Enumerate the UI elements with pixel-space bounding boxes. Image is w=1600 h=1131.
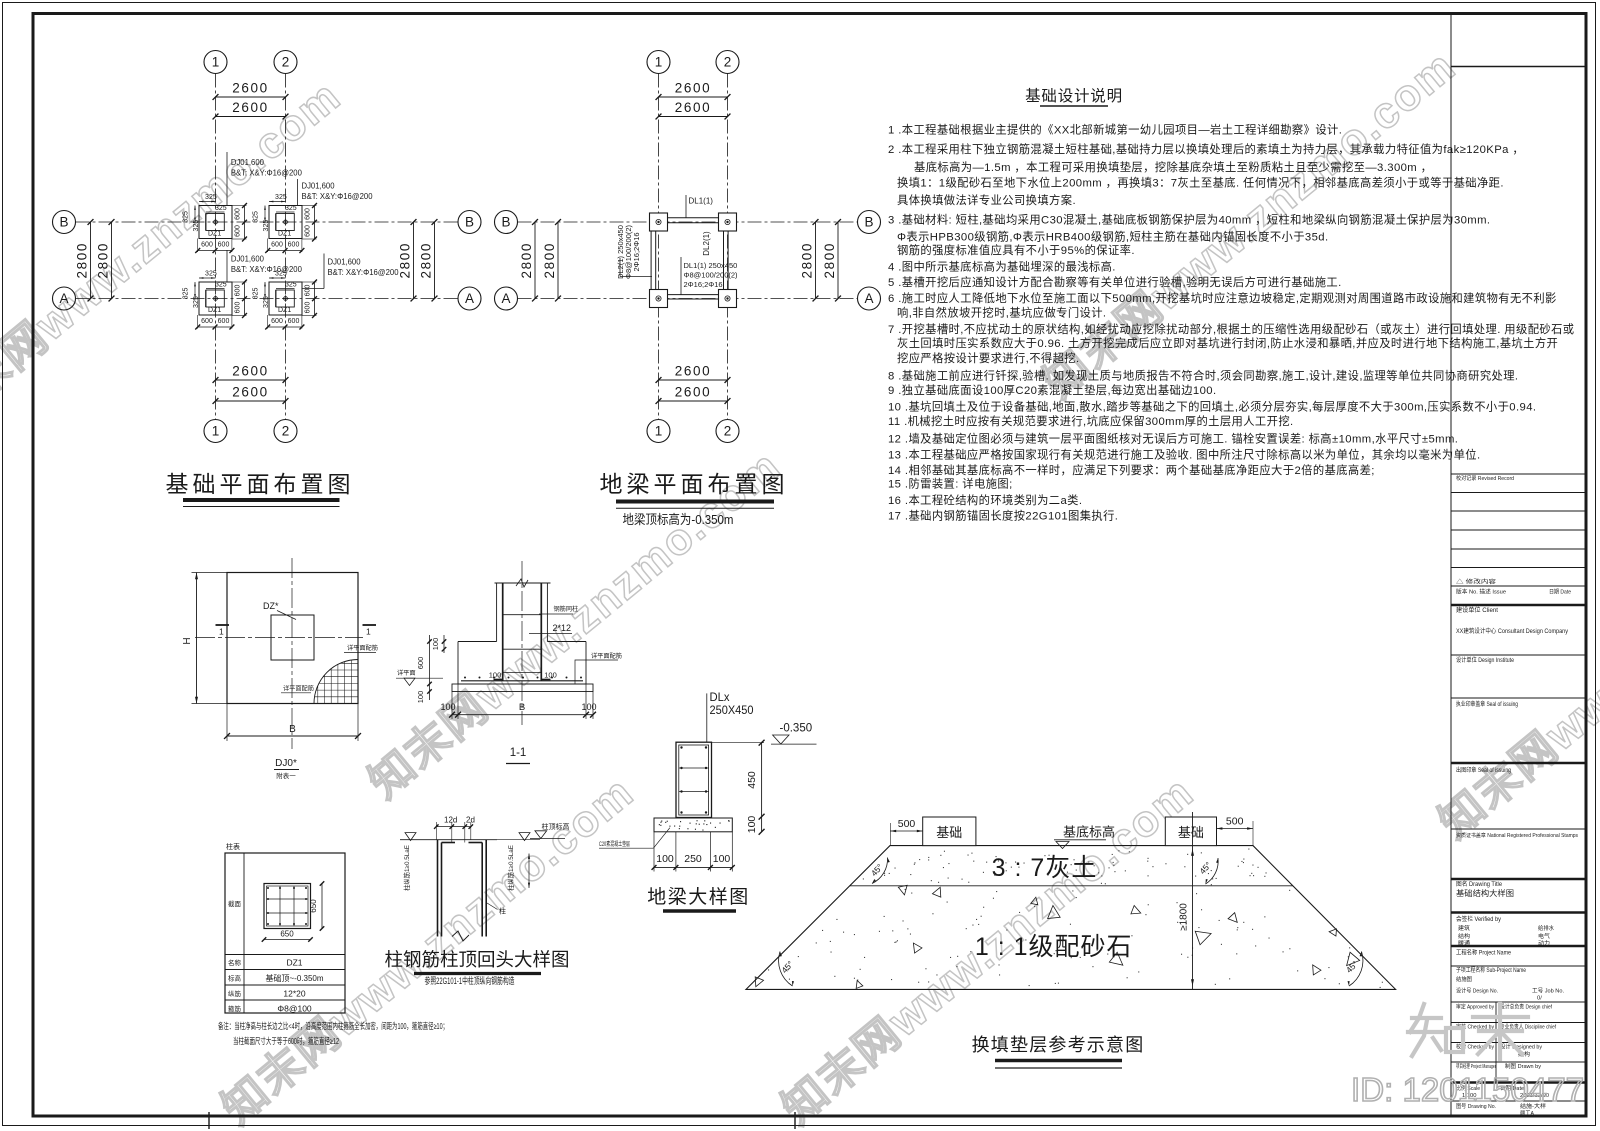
svg-text:基础结构大样图: 基础结构大样图 <box>1456 888 1514 898</box>
svg-text:详平面配筋: 详平面配筋 <box>283 685 314 693</box>
svg-text:2600: 2600 <box>675 81 711 96</box>
svg-text:B&T: X&Y:Φ16@200: B&T: X&Y:Φ16@200 <box>231 264 302 274</box>
svg-text:钢筋同柱: 钢筋同柱 <box>554 605 579 613</box>
svg-text:灰土回填时压实系数应大于0.96. 土方开挖完成后应立即对基: 灰土回填时压实系数应大于0.96. 土方开挖完成后应立即对基坑进行封闭,防止水浸… <box>897 336 1558 350</box>
svg-text:日期 Date: 日期 Date <box>1549 589 1571 596</box>
svg-text:325: 325 <box>215 205 227 212</box>
svg-text:基础: 基础 <box>936 825 962 840</box>
svg-text:DJ01,600: DJ01,600 <box>302 181 335 191</box>
svg-text:柱纵筋1≥0.5LaE: 柱纵筋1≥0.5LaE <box>506 845 515 891</box>
svg-text:3 : 7灰土: 3 : 7灰土 <box>992 854 1098 882</box>
svg-text:设计总负责 Design chief: 设计总负责 Design chief <box>1500 1003 1552 1011</box>
svg-text:10 .基坑回填土及位于设备基础,地面,散水,踏步等基础之下: 10 .基坑回填土及位于设备基础,地面,散水,踏步等基础之下的回填土,必须分层夯… <box>888 400 1536 414</box>
svg-text:DLx: DLx <box>710 690 730 704</box>
svg-text:600: 600 <box>201 242 213 249</box>
svg-text:600: 600 <box>305 208 312 220</box>
svg-text:600: 600 <box>416 657 425 670</box>
svg-text:Φ表示HPB300级钢筋,Φ表示HRB400级钢筋,短柱主筋: Φ表示HPB300级钢筋,Φ表示HRB400级钢筋,短柱主筋在基础内锚固长度不小… <box>897 229 1329 243</box>
svg-text:325: 325 <box>285 281 297 288</box>
svg-text:1 : 1级配砂石: 1 : 1级配砂石 <box>975 933 1133 961</box>
svg-text:箍筋: 箍筋 <box>228 1004 242 1013</box>
svg-text:基础: 基础 <box>1178 825 1204 840</box>
svg-text:动力: 动力 <box>1538 939 1550 947</box>
svg-text:DZ1: DZ1 <box>278 231 291 238</box>
svg-text:11 .机械挖土时应按有关规范要求进行,坑底应保留300mm: 11 .机械挖土时应按有关规范要求进行,坑底应保留300mm厚的土层用人工开挖. <box>888 414 1294 428</box>
svg-text:附表一: 附表一 <box>276 771 296 780</box>
svg-text:柱顶标高: 柱顶标高 <box>542 822 570 831</box>
svg-text:325: 325 <box>193 296 200 308</box>
svg-text:600: 600 <box>305 225 312 237</box>
svg-text:2800: 2800 <box>519 242 534 278</box>
svg-text:地梁平面布置图: 地梁平面布置图 <box>600 471 789 497</box>
svg-text:12*20: 12*20 <box>283 989 305 999</box>
svg-text:650: 650 <box>280 930 294 939</box>
svg-text:审定 Approved by: 审定 Approved by <box>1456 1003 1494 1011</box>
svg-text:2: 2 <box>724 424 732 439</box>
svg-text:≥1800: ≥1800 <box>1179 903 1190 931</box>
svg-text:1-1: 1-1 <box>510 747 527 759</box>
svg-text:A: A <box>59 291 68 306</box>
svg-text:1: 1 <box>366 627 371 637</box>
svg-text:100: 100 <box>656 853 674 865</box>
svg-text:2Φ16;2Φ16: 2Φ16;2Φ16 <box>684 280 723 289</box>
svg-text:钢筋的强度标准值应具有不小于95%的保证率.: 钢筋的强度标准值应具有不小于95%的保证率. <box>897 243 1135 257</box>
svg-text:325: 325 <box>253 211 260 223</box>
svg-text:600: 600 <box>271 242 283 249</box>
svg-text:600: 600 <box>235 302 242 314</box>
svg-text:1: 1 <box>655 55 663 70</box>
svg-text:600: 600 <box>305 302 312 314</box>
svg-text:基底标高为—1.5m ，本工程可采用换填垫层，挖除基底杂填土: 基底标高为—1.5m ，本工程可采用换填垫层，挖除基底杂填土至粉质粘土且至少需挖… <box>914 160 1432 174</box>
svg-text:250X450: 250X450 <box>710 703 754 717</box>
svg-text:2d: 2d <box>466 816 475 825</box>
svg-text:B: B <box>864 215 873 230</box>
svg-text:14 .相邻基础其基底标高不一样时，应满足下列要求：两个基础: 14 .相邻基础其基底标高不一样时，应满足下列要求：两个基础基底净距应大于2倍的… <box>888 463 1375 477</box>
svg-text:2600: 2600 <box>675 385 711 400</box>
svg-text:工号 Job No.: 工号 Job No. <box>1532 988 1564 995</box>
svg-text:结构: 结构 <box>1458 932 1470 940</box>
svg-text:设计单位 Design Institute: 设计单位 Design Institute <box>1456 656 1514 664</box>
svg-text:电气: 电气 <box>1538 932 1550 940</box>
svg-text:地梁顶标高为-0.350m: 地梁顶标高为-0.350m <box>623 512 734 527</box>
svg-text:1: 1 <box>212 424 220 439</box>
svg-text:325: 325 <box>285 205 297 212</box>
svg-text:B: B <box>519 702 525 713</box>
svg-text:项目经理 Project Manager: 项目经理 Project Manager <box>1456 1062 1496 1070</box>
svg-text:600: 600 <box>218 318 230 325</box>
svg-text:DL2(1): DL2(1) <box>702 231 711 256</box>
svg-text:暖通: 暖通 <box>1458 939 1470 947</box>
svg-text:1: 1 <box>655 424 663 439</box>
svg-text:100: 100 <box>713 853 731 865</box>
svg-text:600: 600 <box>218 242 230 249</box>
svg-text:6 .施工时应人工降低地下水位至施工面以下500mm,开挖基: 6 .施工时应人工降低地下水位至施工面以下500mm,开挖基坑时应注意边坡稳定,… <box>888 291 1557 305</box>
svg-text:校对记录 Revised Record: 校对记录 Revised Record <box>1456 474 1514 482</box>
svg-text:12d: 12d <box>444 816 457 825</box>
svg-text:2800: 2800 <box>398 242 413 278</box>
svg-text:2: 2 <box>282 424 290 439</box>
svg-text:制图 Drawn by: 制图 Drawn by <box>1505 1062 1541 1070</box>
svg-text:600: 600 <box>288 242 300 249</box>
svg-text:2600: 2600 <box>675 364 711 379</box>
svg-text:柱: 柱 <box>499 907 506 916</box>
svg-text:会签栏 Verified by: 会签栏 Verified by <box>1456 915 1501 923</box>
svg-text:建筑: 建筑 <box>1458 924 1470 932</box>
svg-text:4 .图中所示基底标高为基础埋深的最浅标高.: 4 .图中所示基底标高为基础埋深的最浅标高. <box>888 260 1116 274</box>
svg-text:650: 650 <box>309 899 318 913</box>
svg-text:DZ*: DZ* <box>263 601 279 611</box>
svg-text:2800: 2800 <box>542 242 557 278</box>
svg-text:325: 325 <box>215 281 227 288</box>
svg-text:100: 100 <box>489 671 502 680</box>
svg-text:325: 325 <box>205 271 217 278</box>
svg-text:2800: 2800 <box>800 242 815 278</box>
svg-text:250: 250 <box>684 853 702 865</box>
svg-text:基底标高: 基底标高 <box>1063 825 1115 840</box>
svg-text:详平面: 详平面 <box>397 669 416 677</box>
svg-text:1 .本工程基础根据业主提供的《XX北部新城第一幼儿园项目—: 1 .本工程基础根据业主提供的《XX北部新城第一幼儿园项目—岩土工程详细勘察》设… <box>888 123 1342 137</box>
svg-text:2: 2 <box>724 55 732 70</box>
svg-text:资质证书盖章 National Registered: 资质证书盖章 National Registered Professional … <box>1456 831 1578 839</box>
svg-text:0/: 0/ <box>1537 996 1542 1002</box>
svg-text:600: 600 <box>201 318 213 325</box>
svg-text:3 .基础材料: 短柱,基础均采用C30混凝土,基础底板钢筋: 3 .基础材料: 短柱,基础均采用C30混凝土,基础底板钢筋保护层为40mm ，… <box>888 213 1490 227</box>
svg-text:工程名称 Project Name: 工程名称 Project Name <box>1456 949 1511 957</box>
svg-text:XX建筑设计中心 Consultant Design: XX建筑设计中心 Consultant Design Company <box>1456 627 1568 635</box>
svg-text:100: 100 <box>544 671 557 680</box>
svg-text:DZ1: DZ1 <box>278 307 291 314</box>
svg-text:DZ1: DZ1 <box>208 231 221 238</box>
svg-text:B&T: X&Y:Φ16@200: B&T: X&Y:Φ16@200 <box>302 191 373 201</box>
svg-text:名称: 名称 <box>228 958 242 967</box>
svg-text:给排水: 给排水 <box>1538 924 1554 932</box>
svg-text:设计 Designed by: 设计 Designed by <box>1500 1043 1542 1051</box>
svg-text:B: B <box>59 215 68 230</box>
svg-text:325: 325 <box>253 287 260 299</box>
svg-text:2*12: 2*12 <box>553 623 572 633</box>
svg-text:结施图: 结施图 <box>1456 975 1472 983</box>
svg-text:出图印章 Seal of issuing: 出图印章 Seal of issuing <box>1456 766 1511 774</box>
svg-text:设计号 Design No.: 设计号 Design No. <box>1456 987 1498 995</box>
svg-text:2800: 2800 <box>96 242 111 278</box>
svg-text:325: 325 <box>193 220 200 232</box>
svg-text:当柱截面尺寸大于等于600时，箍筋直径≥12: 当柱截面尺寸大于等于600时，箍筋直径≥12 <box>233 1036 339 1046</box>
svg-text:325: 325 <box>263 296 270 308</box>
svg-text:15 .防雷装置: 详电施图;: 15 .防雷装置: 详电施图; <box>888 477 1013 491</box>
svg-text:DL1(1) 250x450: DL1(1) 250x450 <box>684 261 738 270</box>
svg-text:DJ01,600: DJ01,600 <box>231 254 264 264</box>
svg-text:C20素混凝土垫层: C20素混凝土垫层 <box>599 840 630 848</box>
svg-text:DJ0*: DJ0* <box>275 758 297 769</box>
svg-text:Φ8@100: Φ8@100 <box>277 1004 312 1014</box>
svg-text:2Φ16;2Φ16: 2Φ16;2Φ16 <box>632 232 641 271</box>
svg-text:详平面配筋: 详平面配筋 <box>347 644 378 652</box>
svg-text:2 .本工程采用柱下独立钢筋混凝土短柱基础,基础持力层以换填: 2 .本工程采用柱下独立钢筋混凝土短柱基础,基础持力层以换填处理后的素填土为持力… <box>888 142 1524 156</box>
svg-text:2800: 2800 <box>75 242 90 278</box>
svg-text:2600: 2600 <box>232 385 268 400</box>
svg-text:纵筋: 纵筋 <box>228 989 242 998</box>
svg-text:DZ1: DZ1 <box>208 307 221 314</box>
svg-text:H: H <box>182 637 193 644</box>
svg-text:柱纵筋1≥0.5LaE: 柱纵筋1≥0.5LaE <box>402 845 411 891</box>
svg-text:100: 100 <box>431 638 440 651</box>
svg-text:版本 No. 描述 Issue: 版本 No. 描述 Issue <box>1456 588 1506 596</box>
svg-text:100: 100 <box>416 691 425 704</box>
svg-text:2800: 2800 <box>822 242 837 278</box>
svg-text:13 .本工程基础应严格按国家现行有关规范进行施工及验收.: 13 .本工程基础应严格按国家现行有关规范进行施工及验收. 图中所注尺寸除标高以… <box>888 447 1481 461</box>
svg-text:柱表: 柱表 <box>226 842 240 851</box>
svg-text:325: 325 <box>205 194 217 201</box>
svg-text:△ 修改内容: △ 修改内容 <box>1456 578 1496 586</box>
svg-text:Φ8@100/200(2): Φ8@100/200(2) <box>684 271 739 280</box>
svg-text:ID: 1201150477: ID: 1201150477 <box>1351 1071 1584 1108</box>
svg-text:1: 1 <box>212 55 220 70</box>
svg-text:DJ01,600: DJ01,600 <box>328 257 361 267</box>
svg-text:疆工A: 疆工A <box>1520 1110 1534 1117</box>
svg-text:600: 600 <box>235 208 242 220</box>
svg-text:100: 100 <box>581 702 596 712</box>
svg-text:2600: 2600 <box>232 81 268 96</box>
svg-text:2800: 2800 <box>419 242 434 278</box>
svg-text:备注：当柱净高与柱长边之比<4时，沿高度范围内柱箍筋全长加密: 备注：当柱净高与柱长边之比<4时，沿高度范围内柱箍筋全长加密，间距为100，箍筋… <box>218 1021 448 1031</box>
svg-text:子项工程名称 Sub-Project Name: 子项工程名称 Sub-Project Name <box>1456 966 1527 974</box>
svg-text:1: 1 <box>219 627 224 637</box>
svg-text:具体换填做法详专业公司换填方案.: 具体换填做法详专业公司换填方案. <box>897 193 1076 207</box>
svg-text:325: 325 <box>263 220 270 232</box>
svg-text:8 .基础施工前应进行钎探,验槽. 如发现土质与地质报告不符: 8 .基础施工前应进行钎探,验槽. 如发现土质与地质报告不符合时,须会同勘察,施… <box>888 369 1518 383</box>
svg-text:DJ01,600: DJ01,600 <box>231 157 264 167</box>
svg-text:600: 600 <box>288 318 300 325</box>
svg-text:600: 600 <box>235 225 242 237</box>
svg-text:标高: 标高 <box>228 974 242 983</box>
svg-text:B: B <box>289 724 296 735</box>
svg-text:挖应严格按设计要求进行,不得超挖.: 挖应严格按设计要求进行,不得超挖. <box>897 351 1080 365</box>
svg-text:2600: 2600 <box>675 100 711 115</box>
svg-text:16 .本工程砼结构的环境类别为二a类.: 16 .本工程砼结构的环境类别为二a类. <box>888 493 1082 507</box>
svg-text:DL1(1): DL1(1) <box>689 197 714 206</box>
svg-text:600: 600 <box>305 285 312 297</box>
svg-text:12 .墙及基础定位图必须与建筑一层平面图纸核对无误后方可施: 12 .墙及基础定位图必须与建筑一层平面图纸核对无误后方可施工. 锚栓安置误差:… <box>888 432 1458 446</box>
svg-text:基础顶~-0.350m: 基础顶~-0.350m <box>265 973 323 983</box>
svg-text:500: 500 <box>898 818 916 830</box>
svg-text:B&T: X&Y:Φ16@200: B&T: X&Y:Φ16@200 <box>231 168 302 178</box>
svg-text:2600: 2600 <box>232 364 268 379</box>
svg-text:响,非自然放坡开挖时,基坑应做专门设计.: 响,非自然放坡开挖时,基坑应做专门设计. <box>897 305 1106 319</box>
svg-text:柱钢筋柱顶回头大样图: 柱钢筋柱顶回头大样图 <box>384 949 569 970</box>
svg-text:100: 100 <box>746 816 758 834</box>
svg-text:325: 325 <box>275 194 287 201</box>
svg-text:A: A <box>864 291 873 306</box>
svg-text:A: A <box>465 291 474 306</box>
svg-text:9 .独立基础底面设100厚C20素混凝土垫层,每边宽出基础: 9 .独立基础底面设100厚C20素混凝土垫层,每边宽出基础边100. <box>888 383 1217 397</box>
svg-text:换填1：1级配砂石至地下水位上200mm ，再换填3：7灰土: 换填1：1级配砂石至地下水位上200mm ，再换填3：7灰土至基底. 任何情况下… <box>897 175 1504 189</box>
svg-text:7 .开挖基槽时,不应扰动土的原状结构,如经扰动应挖除扰动部: 7 .开挖基槽时,不应扰动土的原状结构,如经扰动应挖除扰动部分,根据土的压缩性选… <box>888 322 1574 336</box>
svg-text:5 .基槽开挖后应通知设计方配合勘察等有关单位进行验槽,验明: 5 .基槽开挖后应通知设计方配合勘察等有关单位进行验槽,验明无误后方可进行基础施… <box>888 275 1342 289</box>
svg-text:详平面配筋: 详平面配筋 <box>591 652 622 660</box>
svg-text:2600: 2600 <box>232 100 268 115</box>
svg-text:500: 500 <box>1226 816 1244 828</box>
svg-text:参照22G101-1中柱顶纵向钢筋构造: 参照22G101-1中柱顶纵向钢筋构造 <box>425 975 515 986</box>
svg-text:地梁大样图: 地梁大样图 <box>647 886 750 908</box>
svg-text:执业印章盖章 Seal of issuing: 执业印章盖章 Seal of issuing <box>1456 700 1518 708</box>
svg-text:B&T: X&Y:Φ16@200: B&T: X&Y:Φ16@200 <box>328 267 399 277</box>
svg-text:17 .基础内钢筋锚固长度按22G101图集执行.: 17 .基础内钢筋锚固长度按22G101图集执行. <box>888 509 1118 523</box>
svg-text:建设单位 Client: 建设单位 Client <box>1456 606 1498 614</box>
svg-text:换填垫层参考示意图: 换填垫层参考示意图 <box>972 1035 1145 1055</box>
svg-text:600: 600 <box>271 318 283 325</box>
svg-text:基础设计说明: 基础设计说明 <box>1025 87 1123 105</box>
svg-text:-0.350: -0.350 <box>780 723 813 735</box>
svg-text:325: 325 <box>183 211 190 223</box>
svg-text:图名 Drawing Title: 图名 Drawing Title <box>1456 880 1503 888</box>
svg-text:DZ1: DZ1 <box>286 958 302 968</box>
svg-text:B: B <box>465 215 474 230</box>
svg-text:325: 325 <box>183 287 190 299</box>
svg-text:基础平面布置图: 基础平面布置图 <box>166 471 355 497</box>
svg-text:100: 100 <box>440 702 455 712</box>
svg-text:450: 450 <box>746 771 758 789</box>
svg-text:截面: 截面 <box>228 899 242 908</box>
svg-text:B: B <box>501 215 510 230</box>
svg-text:A: A <box>501 291 510 306</box>
svg-text:600: 600 <box>235 285 242 297</box>
svg-text:2: 2 <box>282 55 290 70</box>
